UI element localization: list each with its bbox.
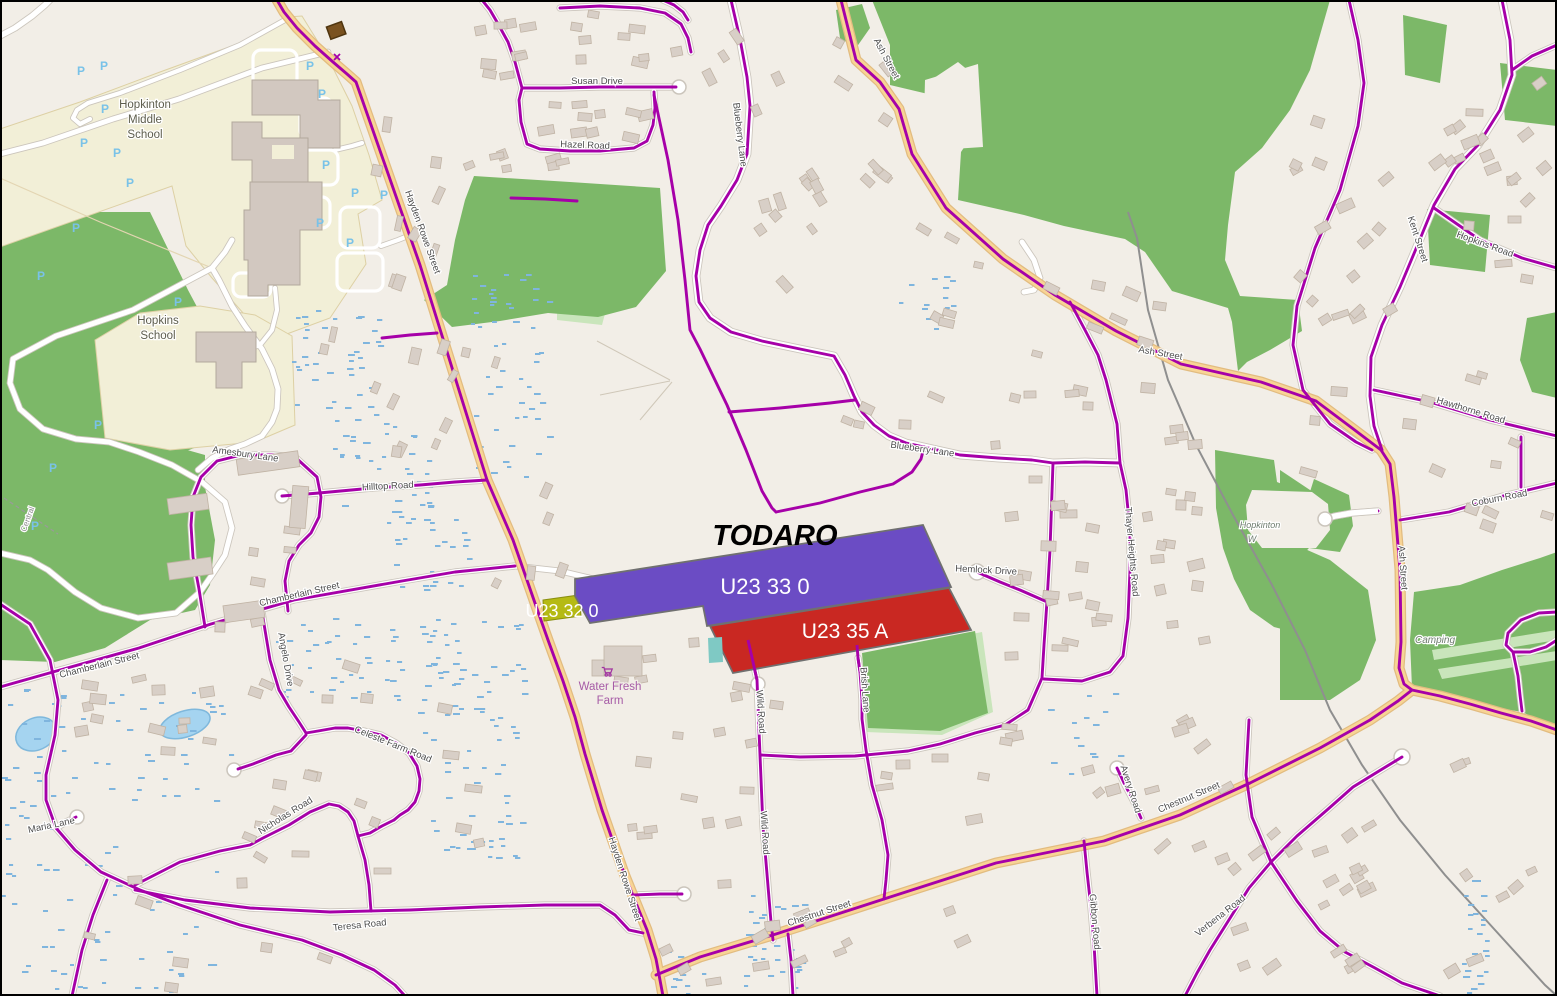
svg-text:P: P bbox=[174, 295, 182, 309]
svg-text:P: P bbox=[306, 59, 314, 73]
svg-text:TODARO: TODARO bbox=[712, 520, 838, 552]
svg-text:U23 35 A: U23 35 A bbox=[802, 620, 888, 643]
svg-text:P: P bbox=[322, 158, 330, 172]
svg-text:U23 33 0: U23 33 0 bbox=[720, 574, 809, 599]
svg-text:Hazel Road: Hazel Road bbox=[560, 139, 610, 152]
svg-text:Hopkinton: Hopkinton bbox=[1240, 520, 1281, 530]
svg-text:School: School bbox=[140, 330, 175, 342]
svg-text:Camping: Camping bbox=[1415, 635, 1455, 646]
svg-text:School: School bbox=[127, 129, 162, 141]
svg-text:P: P bbox=[346, 236, 354, 250]
svg-text:P: P bbox=[37, 269, 45, 283]
svg-text:Water Fresh: Water Fresh bbox=[579, 681, 642, 693]
svg-text:P: P bbox=[94, 418, 102, 432]
svg-text:Hopkinton: Hopkinton bbox=[119, 99, 171, 111]
svg-text:Middle: Middle bbox=[128, 114, 162, 126]
svg-text:P: P bbox=[80, 136, 88, 150]
svg-text:Susan Drive: Susan Drive bbox=[571, 76, 623, 87]
svg-text:P: P bbox=[77, 64, 85, 78]
svg-text:P: P bbox=[380, 188, 388, 202]
svg-text:P: P bbox=[101, 102, 109, 116]
svg-text:P: P bbox=[318, 87, 326, 101]
svg-text:P: P bbox=[126, 176, 134, 190]
svg-text:P: P bbox=[351, 186, 359, 200]
svg-text:Farm: Farm bbox=[597, 695, 624, 707]
svg-text:Hopkins: Hopkins bbox=[137, 315, 179, 327]
svg-text:P: P bbox=[100, 59, 108, 73]
svg-text:P: P bbox=[49, 461, 57, 475]
svg-text:P: P bbox=[31, 519, 39, 533]
svg-text:U23 32 0: U23 32 0 bbox=[525, 601, 598, 621]
svg-text:P: P bbox=[316, 216, 324, 230]
svg-text:P: P bbox=[113, 146, 121, 160]
svg-text:P: P bbox=[72, 221, 80, 235]
